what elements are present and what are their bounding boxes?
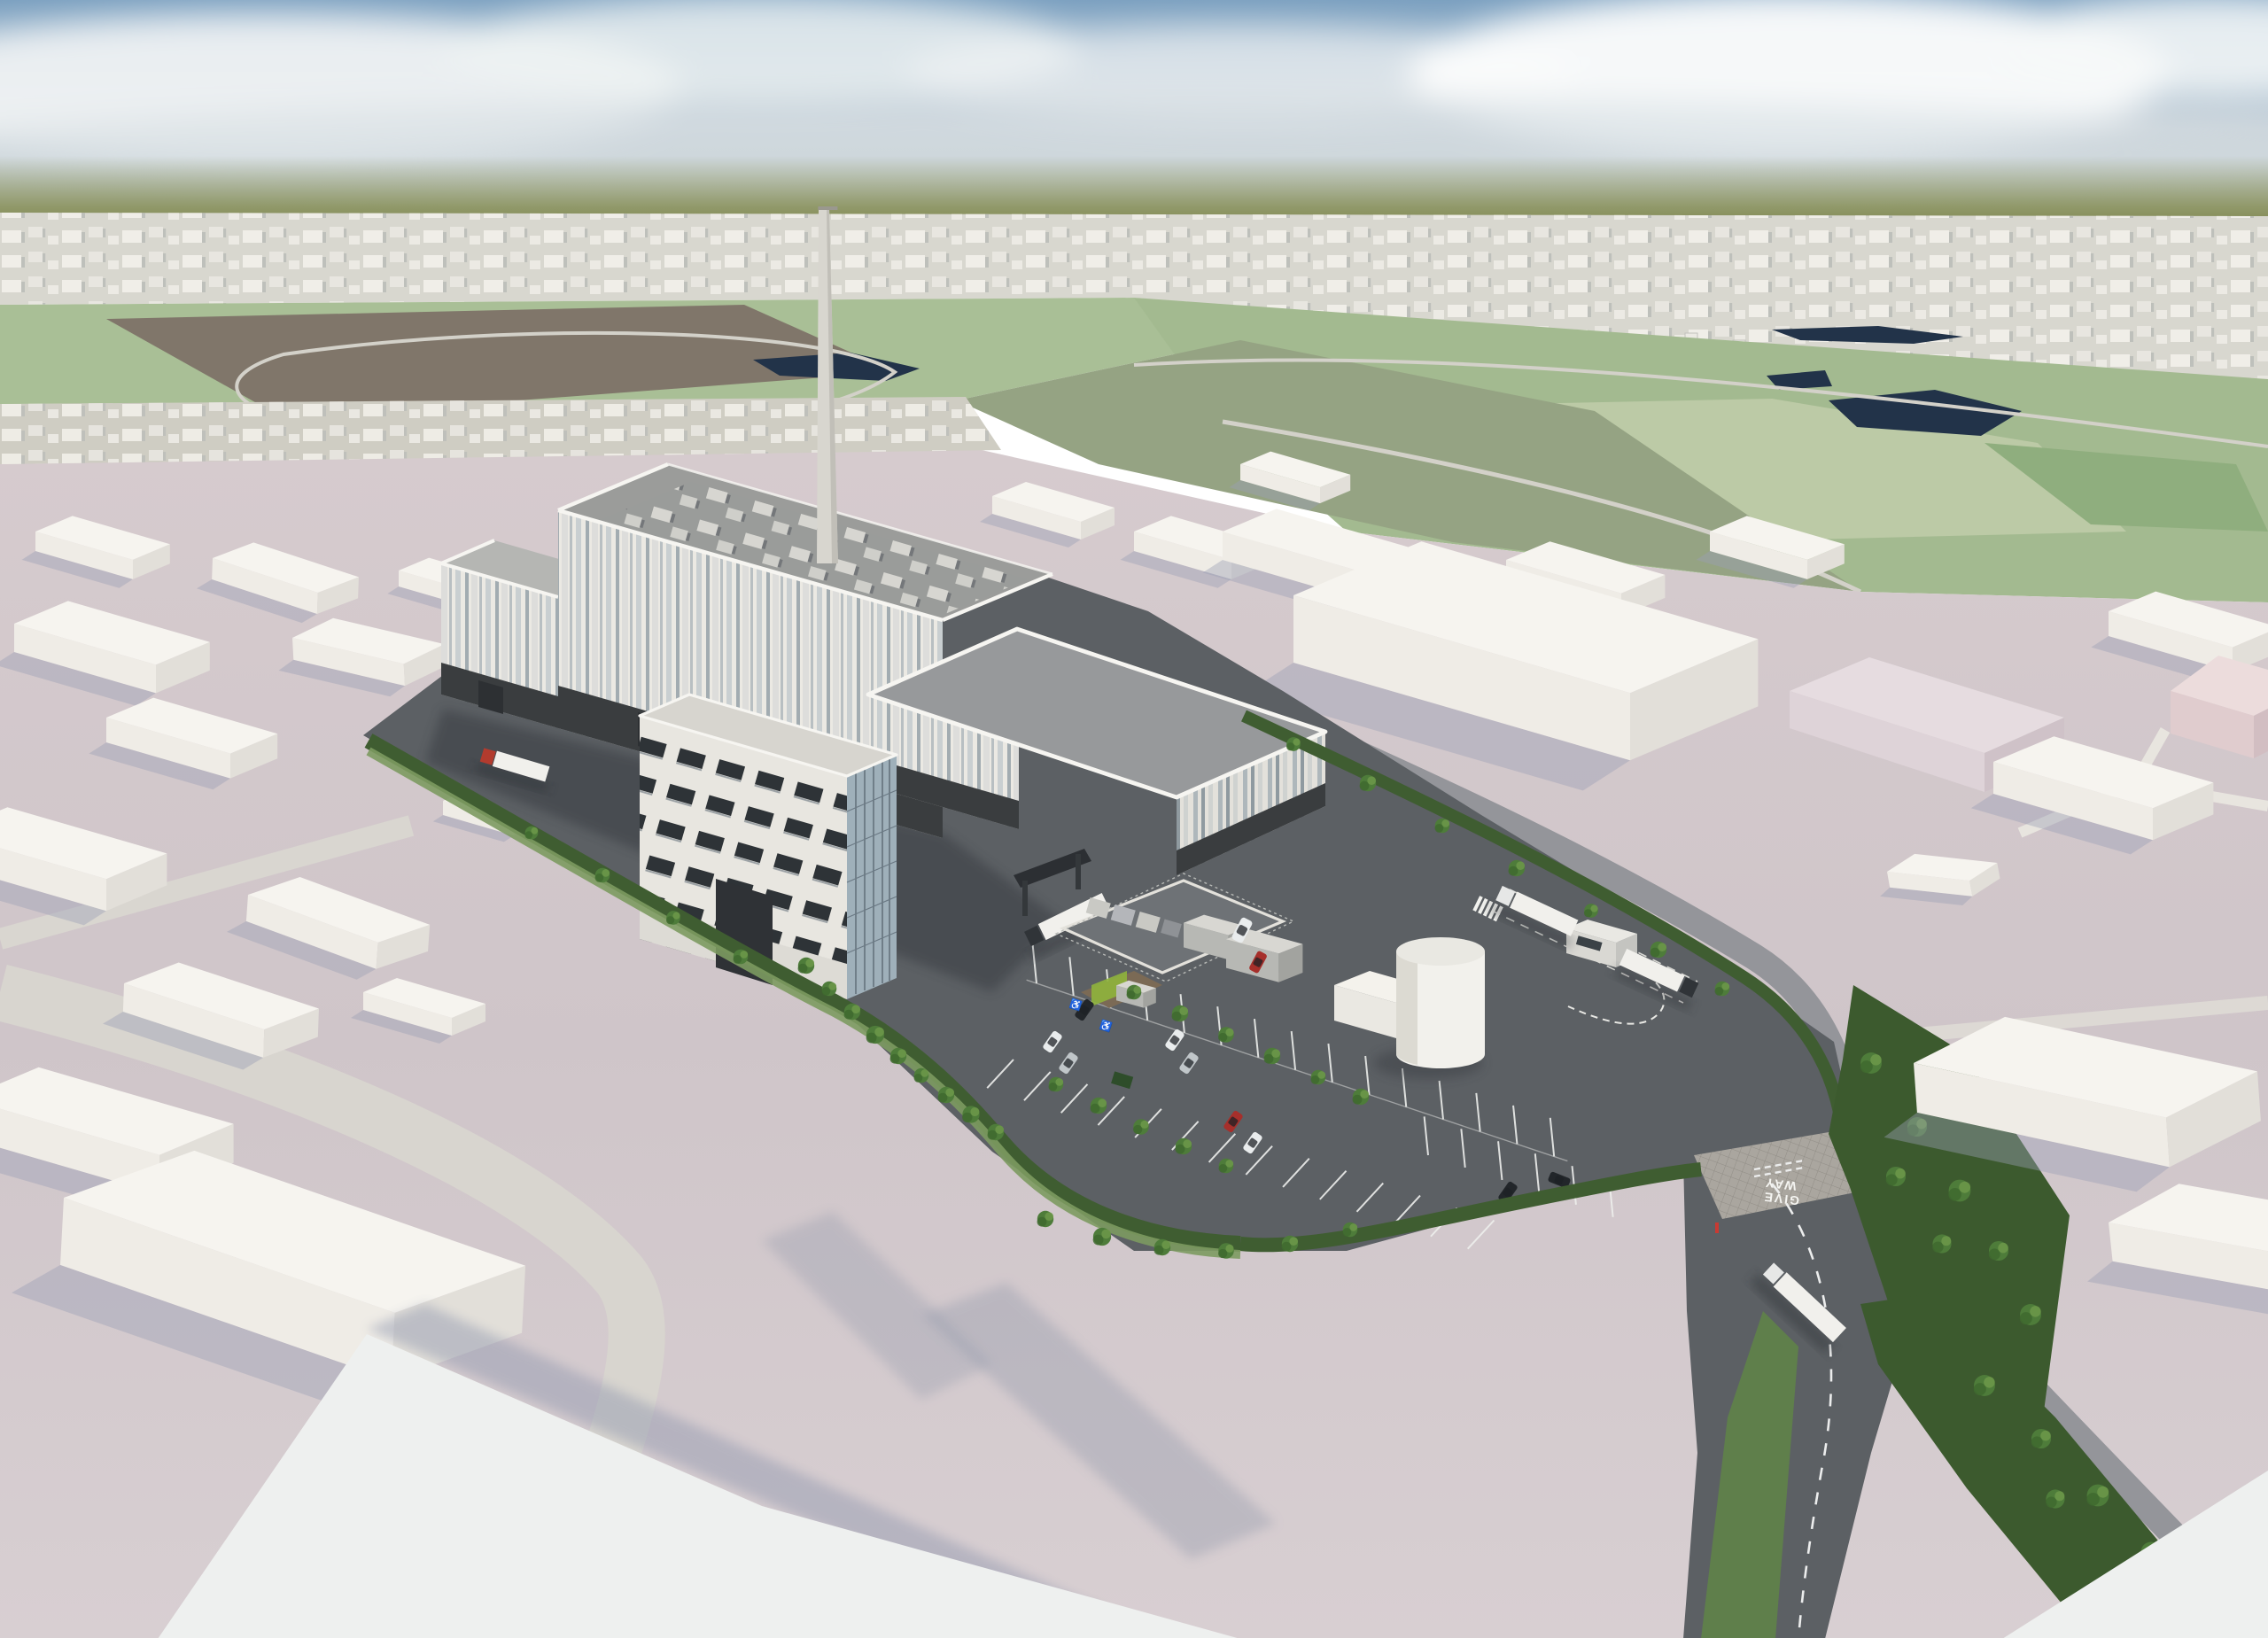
give-way-sign	[1715, 1223, 1719, 1233]
give-way-marking: GIVE WAY	[1757, 1175, 1802, 1208]
render-viewport: ♿ ♿ GIVE WAY	[0, 0, 2268, 1638]
rendered-scene: ♿ ♿ GIVE WAY	[0, 0, 2268, 1638]
tank-shade	[1396, 951, 1417, 1065]
stack-cap	[818, 206, 837, 210]
svg-text:GIVE WAY: GIVE WAY	[1757, 1175, 1802, 1208]
